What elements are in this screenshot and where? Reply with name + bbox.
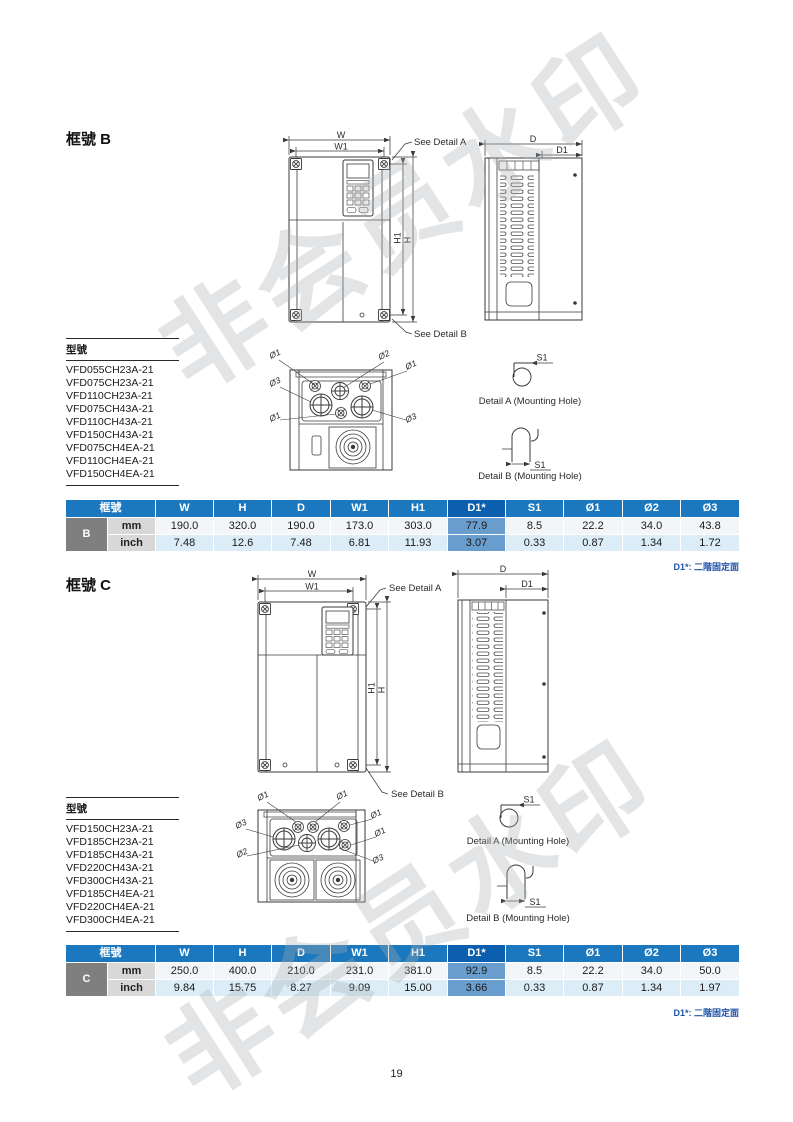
column-header: H1	[389, 500, 448, 518]
dim-label-d: D	[530, 134, 537, 144]
dim-label-h: H	[403, 237, 413, 244]
hole-label-phi1: Ø1	[267, 347, 283, 362]
table-cell: 210.0	[272, 963, 331, 980]
detail-a-caption: Detail A (Mounting Hole)	[479, 396, 581, 407]
hole-label-phi1: Ø1	[372, 825, 388, 840]
table-cell: 22.2	[564, 518, 623, 535]
table-cell-d1: 92.9	[448, 963, 506, 980]
dim-label-w1: W1	[334, 142, 348, 152]
table-cell: 400.0	[214, 963, 272, 980]
see-detail-a-callout: See Detail A	[389, 583, 442, 594]
dim-label-h1: H1	[367, 682, 377, 694]
see-detail-b-callout: See Detail B	[391, 789, 444, 800]
table-cell: 15.75	[214, 980, 272, 997]
table-cell: 43.8	[681, 518, 740, 535]
frame-b-side-dimensions: D D1	[485, 134, 582, 158]
frame-b-bottom-view	[290, 370, 392, 470]
model-number: VFD150CH43A-21	[66, 429, 179, 442]
table-cell: 190.0	[156, 518, 214, 535]
model-list-heading: 型號	[66, 798, 179, 820]
frame-b-side-view	[485, 158, 582, 320]
table-cell: 15.00	[389, 980, 448, 997]
dim-label-s1: S1	[529, 897, 540, 907]
frame-c-front-view	[258, 602, 366, 772]
column-header: Ø1	[564, 945, 623, 963]
column-header: S1	[506, 945, 564, 963]
table-cell: 7.48	[272, 535, 331, 552]
unit-cell: mm	[108, 963, 156, 980]
dim-label-h1: H1	[393, 232, 403, 244]
model-number: VFD075CH43A-21	[66, 403, 179, 416]
model-number: VFD150CH4EA-21	[66, 468, 179, 481]
column-header: W	[156, 500, 214, 518]
column-header: Ø3	[681, 500, 740, 518]
table-cell: 0.33	[506, 980, 564, 997]
model-number: VFD075CH4EA-21	[66, 442, 179, 455]
column-header: W1	[331, 500, 389, 518]
hole-label-phi2: Ø2	[234, 846, 250, 861]
table-cell: 11.93	[389, 535, 448, 552]
detail-b-caption: Detail B (Mounting Hole)	[466, 913, 570, 924]
hole-label-phi1: Ø1	[403, 358, 419, 373]
column-header: W	[156, 945, 214, 963]
hole-label-phi1: Ø1	[334, 788, 350, 803]
hole-label-phi1: Ø1	[267, 410, 283, 425]
table-cell: 1.34	[623, 535, 681, 552]
model-number: VFD150CH23A-21	[66, 823, 179, 836]
frame-c-side-view	[458, 600, 548, 772]
table-cell: 6.81	[331, 535, 389, 552]
column-header: 框號	[66, 500, 156, 518]
model-number: VFD300CH43A-21	[66, 875, 179, 888]
table-cell-d1: 3.66	[448, 980, 506, 997]
unit-cell: mm	[108, 518, 156, 535]
frame-b-detail-a: S1 Detail A (Mounting Hole)	[479, 353, 581, 408]
column-header: S1	[506, 500, 564, 518]
table-cell: 381.0	[389, 963, 448, 980]
table-cell: 12.6	[214, 535, 272, 552]
hole-label-phi3: Ø3	[267, 375, 283, 390]
unit-cell: inch	[108, 535, 156, 552]
model-number: VFD185CH4EA-21	[66, 888, 179, 901]
table-cell: 1.97	[681, 980, 740, 997]
detail-b-caption: Detail B (Mounting Hole)	[478, 471, 582, 482]
table-cell: 173.0	[331, 518, 389, 535]
model-number: VFD185CH23A-21	[66, 836, 179, 849]
section-heading-frame-c: 框號 C	[66, 574, 111, 595]
table-cell: 250.0	[156, 963, 214, 980]
manual-page: W W1 H H1 See Detail A See Detail B	[0, 0, 793, 1122]
dim-label-w: W	[337, 130, 346, 140]
frame-b-detail-b: S1 Detail B (Mounting Hole)	[478, 428, 582, 482]
d1-footnote: D1*: 二階固定面	[65, 1006, 739, 1019]
table-cell: 1.34	[623, 980, 681, 997]
column-header: Ø3	[681, 945, 740, 963]
dim-label-s1: S1	[536, 353, 547, 363]
dim-label-s1: S1	[534, 460, 545, 470]
table-cell: 9.09	[331, 980, 389, 997]
table-cell: 8.5	[506, 518, 564, 535]
model-number: VFD110CH43A-21	[66, 416, 179, 429]
hole-label-phi1: Ø1	[368, 807, 384, 822]
hole-label-phi2: Ø2	[376, 348, 392, 363]
frame-c-dimension-table: 框號 W H D W1 H1 D1* S1 Ø1 Ø2 Ø3 C mm 250.…	[65, 944, 740, 997]
model-number: VFD185CH43A-21	[66, 849, 179, 862]
model-number: VFD300CH4EA-21	[66, 914, 179, 927]
hole-label-phi1: Ø1	[255, 789, 271, 804]
frame-c-bottom-view	[258, 810, 365, 902]
model-number: VFD110CH4EA-21	[66, 455, 179, 468]
column-header: D	[272, 500, 331, 518]
keypad	[343, 160, 373, 216]
column-header: D	[272, 945, 331, 963]
table-cell: 8.27	[272, 980, 331, 997]
frame-b-front-view	[289, 157, 390, 322]
dim-label-d1: D1	[521, 579, 533, 589]
frame-b-dimension-table: 框號 W H D W1 H1 D1* S1 Ø1 Ø2 Ø3 B mm 190.…	[65, 499, 740, 552]
table-cell: 0.87	[564, 980, 623, 997]
hole-label-phi3: Ø3	[403, 411, 419, 426]
frame-c-model-list: 型號 VFD150CH23A-21 VFD185CH23A-21 VFD185C…	[66, 797, 179, 932]
table-cell: 8.5	[506, 963, 564, 980]
table-cell: 1.72	[681, 535, 740, 552]
table-cell: 9.84	[156, 980, 214, 997]
page-number: 19	[0, 1068, 793, 1080]
column-header: Ø2	[623, 945, 681, 963]
column-header: H	[214, 945, 272, 963]
column-header-d1: D1*	[448, 945, 506, 963]
frame-b-model-list: 型號 VFD055CH23A-21 VFD075CH23A-21 VFD110C…	[66, 338, 179, 486]
table-cell: 190.0	[272, 518, 331, 535]
column-header: H	[214, 500, 272, 518]
section-heading-frame-b: 框號 B	[66, 128, 111, 149]
table-cell: 50.0	[681, 963, 740, 980]
table-cell: 34.0	[623, 963, 681, 980]
hole-label-phi3: Ø3	[233, 817, 249, 832]
table-cell: 7.48	[156, 535, 214, 552]
dim-label-w1: W1	[305, 582, 319, 592]
column-header: W1	[331, 945, 389, 963]
unit-cell: inch	[108, 980, 156, 997]
frame-cell: C	[66, 963, 108, 997]
dim-label-h: H	[377, 687, 387, 694]
dim-label-s1: S1	[523, 795, 534, 805]
table-cell-d1: 3.07	[448, 535, 506, 552]
keypad	[322, 607, 353, 655]
column-header: Ø2	[623, 500, 681, 518]
column-header-d1: D1*	[448, 500, 506, 518]
see-detail-a-callout: See Detail A	[414, 137, 467, 148]
d1-footnote: D1*: 二階固定面	[65, 560, 739, 573]
column-header: H1	[389, 945, 448, 963]
column-header: Ø1	[564, 500, 623, 518]
frame-cell: B	[66, 518, 108, 552]
model-number: VFD220CH4EA-21	[66, 901, 179, 914]
column-header: 框號	[66, 945, 156, 963]
hole-label-phi3: Ø3	[370, 852, 386, 867]
model-number: VFD075CH23A-21	[66, 377, 179, 390]
table-cell: 22.2	[564, 963, 623, 980]
model-number: VFD055CH23A-21	[66, 364, 179, 377]
table-cell: 303.0	[389, 518, 448, 535]
table-cell: 34.0	[623, 518, 681, 535]
table-cell: 320.0	[214, 518, 272, 535]
model-list-heading: 型號	[66, 339, 179, 361]
see-detail-b-callout: See Detail B	[414, 329, 467, 340]
table-cell: 0.87	[564, 535, 623, 552]
dim-label-d1: D1	[556, 145, 568, 155]
table-cell-d1: 77.9	[448, 518, 506, 535]
model-number: VFD110CH23A-21	[66, 390, 179, 403]
table-cell: 231.0	[331, 963, 389, 980]
model-number: VFD220CH43A-21	[66, 862, 179, 875]
frame-c-detail-b: S1 Detail B (Mounting Hole)	[466, 865, 570, 924]
table-cell: 0.33	[506, 535, 564, 552]
frame-c-detail-a: S1 Detail A (Mounting Hole)	[467, 795, 569, 848]
detail-a-caption: Detail A (Mounting Hole)	[467, 836, 569, 847]
